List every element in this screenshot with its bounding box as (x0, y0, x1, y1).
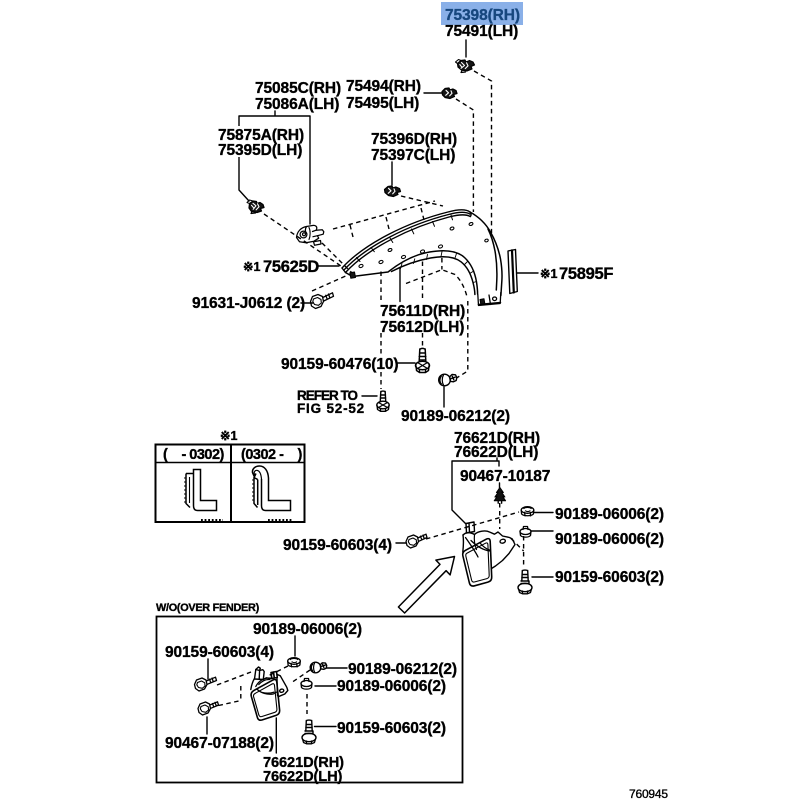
svg-text:75495(LH): 75495(LH) (346, 95, 419, 112)
svg-text:75494(RH): 75494(RH) (346, 78, 421, 95)
svg-text:90159-60603(2): 90159-60603(2) (337, 720, 446, 737)
svg-text:75895F: 75895F (559, 265, 613, 283)
svg-text:75612D(LH): 75612D(LH) (380, 319, 464, 336)
svg-text:75085C(RH): 75085C(RH) (255, 80, 341, 97)
svg-text:75491(LH): 75491(LH) (445, 23, 518, 40)
svg-text:90189-06212(2): 90189-06212(2) (401, 408, 510, 425)
svg-text:90159-60476(10): 90159-60476(10) (281, 356, 398, 373)
svg-text:(0302 - ): (0302 - ) (241, 447, 303, 463)
svg-text:※1: ※1 (243, 260, 260, 274)
svg-text:90467-07188(2): 90467-07188(2) (165, 735, 274, 752)
svg-text:75086A(LH): 75086A(LH) (255, 96, 339, 113)
svg-text:( - 0302): ( - 0302) (163, 447, 225, 463)
svg-text:75611D(RH): 75611D(RH) (380, 303, 465, 320)
svg-text:75625D: 75625D (263, 258, 319, 276)
svg-text:90189-06006(2): 90189-06006(2) (555, 531, 664, 548)
svg-text:FIG 52-52: FIG 52-52 (297, 401, 365, 416)
svg-text:90189-06006(2): 90189-06006(2) (337, 678, 446, 695)
svg-text:76622D(LH): 76622D(LH) (263, 769, 343, 785)
svg-text:75397C(LH): 75397C(LH) (371, 147, 455, 164)
svg-text:90159-60603(2): 90159-60603(2) (555, 569, 664, 586)
svg-text:91631-J0612 (2): 91631-J0612 (2) (192, 295, 305, 312)
svg-text:※1: ※1 (220, 429, 237, 443)
svg-text:90189-06006(2): 90189-06006(2) (555, 506, 664, 523)
svg-text:※1: ※1 (540, 267, 557, 281)
svg-text:90159-60603(4): 90159-60603(4) (283, 537, 392, 554)
svg-text:W/O(OVER FENDER): W/O(OVER FENDER) (156, 602, 260, 614)
svg-text:90159-60603(4): 90159-60603(4) (165, 644, 274, 661)
svg-text:75398(RH): 75398(RH) (445, 7, 520, 24)
svg-text:76622D(LH): 76622D(LH) (454, 444, 538, 461)
svg-text:760945: 760945 (629, 787, 668, 800)
svg-text:75395D(LH): 75395D(LH) (218, 142, 302, 159)
svg-text:90189-06212(2): 90189-06212(2) (348, 661, 457, 678)
svg-text:75396D(RH): 75396D(RH) (371, 131, 457, 148)
svg-text:90189-06006(2): 90189-06006(2) (253, 621, 362, 638)
svg-text:90467-10187: 90467-10187 (460, 468, 550, 485)
